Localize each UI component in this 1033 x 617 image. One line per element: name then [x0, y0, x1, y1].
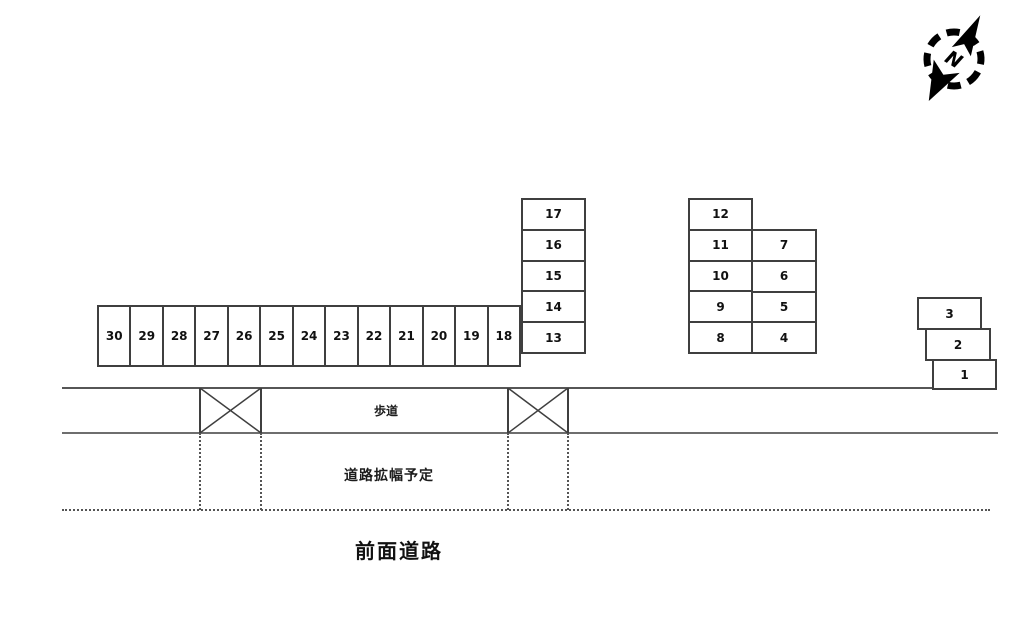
parking-column-12-8: 12 11 10 9 8 [688, 198, 753, 354]
parking-space-15: 15 [523, 260, 584, 291]
parking-space-3: 3 [917, 297, 982, 330]
parking-space-30: 30 [99, 307, 129, 365]
parking-space-12: 12 [690, 200, 751, 229]
compass-n-label: N [941, 46, 966, 73]
parking-space-21: 21 [389, 307, 421, 365]
parking-row-30-18: 30 29 28 27 26 25 24 23 22 21 20 19 18 [97, 305, 521, 367]
parking-column-7-4: 7 6 5 4 [751, 229, 817, 354]
parking-space-16: 16 [523, 229, 584, 260]
parking-space-13: 13 [523, 321, 584, 352]
parking-space-23: 23 [324, 307, 356, 365]
parking-space-22: 22 [357, 307, 389, 365]
parking-space-29: 29 [129, 307, 161, 365]
sidewalk-label: 歩道 [374, 402, 398, 419]
parking-space-11: 11 [690, 229, 751, 260]
road-boundary-dotted-line [62, 509, 990, 511]
parking-space-17: 17 [523, 200, 584, 229]
driveway-cross-mark-right [507, 388, 569, 433]
parking-space-25: 25 [259, 307, 291, 365]
parking-space-28: 28 [162, 307, 194, 365]
driveway-cross-mark-left [199, 388, 262, 433]
parking-space-19: 19 [454, 307, 486, 365]
front-road-label: 前面道路 [355, 535, 443, 564]
parking-space-27: 27 [194, 307, 226, 365]
parking-space-9: 9 [690, 290, 751, 321]
road-widening-label: 道路拡幅予定 [344, 465, 434, 485]
projection-dotted-line [507, 433, 509, 510]
parking-space-14: 14 [523, 290, 584, 321]
parking-space-6: 6 [753, 260, 815, 291]
parking-space-1: 1 [932, 359, 997, 390]
parking-space-26: 26 [227, 307, 259, 365]
parking-space-5: 5 [753, 291, 815, 322]
sidewalk-top-line [62, 387, 932, 389]
compass-north-icon: N [907, 4, 997, 108]
parking-space-24: 24 [292, 307, 324, 365]
projection-dotted-line [567, 433, 569, 510]
parking-space-8: 8 [690, 321, 751, 352]
parking-space-18: 18 [487, 307, 519, 365]
parking-space-2: 2 [925, 328, 991, 361]
projection-dotted-line [260, 433, 262, 510]
parking-space-4: 4 [753, 321, 815, 352]
parking-column-17-13: 17 16 15 14 13 [521, 198, 586, 354]
projection-dotted-line [199, 433, 201, 510]
parking-space-20: 20 [422, 307, 454, 365]
parking-space-10: 10 [690, 260, 751, 291]
parking-layout-plan: N 30 29 28 27 26 25 24 23 22 21 20 19 18… [0, 0, 1033, 617]
parking-space-7: 7 [753, 231, 815, 260]
